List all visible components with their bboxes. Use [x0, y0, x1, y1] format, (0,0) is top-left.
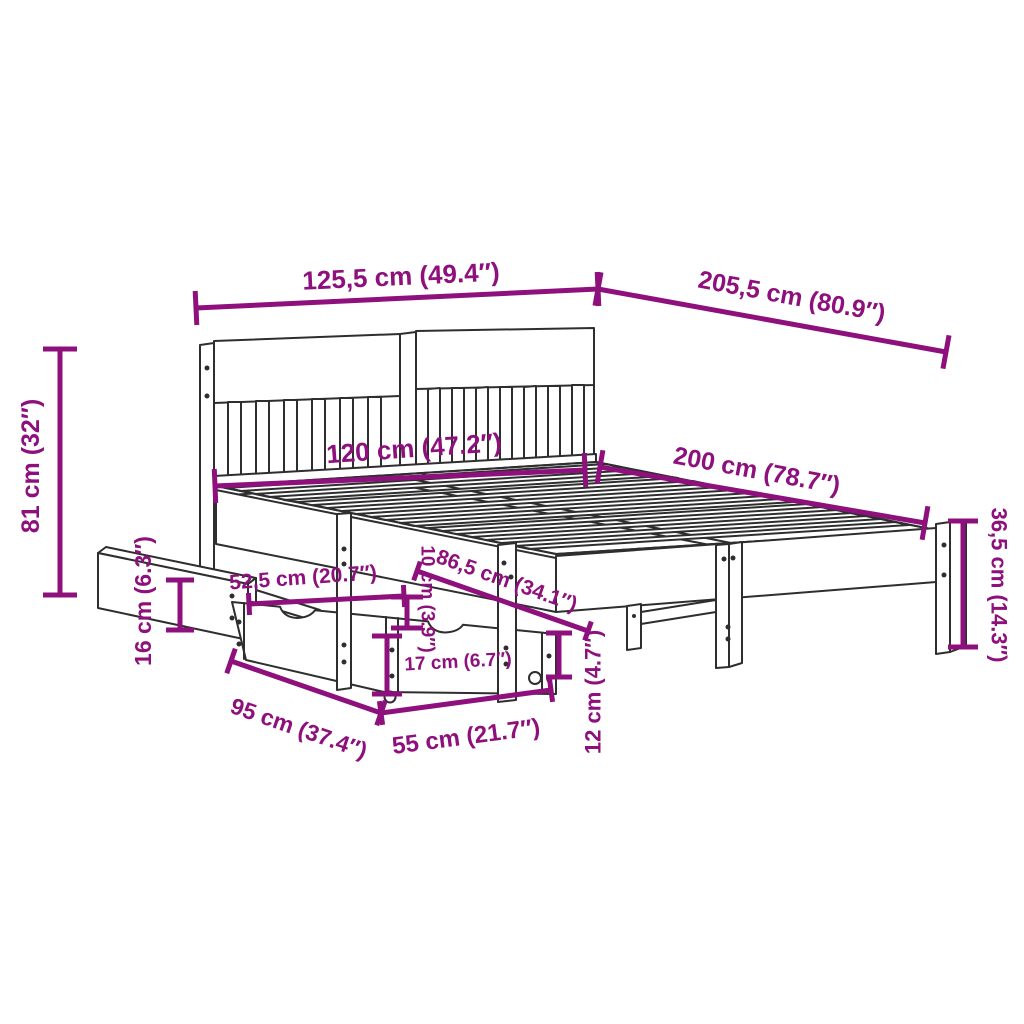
foot-middle-leg-front	[716, 544, 729, 668]
dimension-headboard-height: 81 cm (32″)	[17, 349, 77, 595]
inner-support-leg	[627, 604, 641, 650]
dimension-overall-length: 205,5 cm (80.9″)	[595, 266, 949, 369]
diagram-canvas: 125,5 cm (49.4″)205,5 cm (80.9″)81 cm (3…	[0, 0, 1024, 1024]
foot-middle-leg-side	[729, 542, 742, 667]
foot-right-leg-front	[936, 522, 950, 654]
dimension-label-drawer-top-depth: 52,5 cm (20.7″)	[229, 561, 378, 594]
dimension-label-drawer-panel-height: 16 cm (6.3″)	[130, 536, 156, 666]
bed-dimension-diagram: 125,5 cm (49.4″)205,5 cm (80.9″)81 cm (3…	[0, 0, 1024, 1024]
dimension-label-drawer-width: 55 cm (21.7″)	[391, 714, 542, 760]
dimension-overall-width: 125,5 cm (49.4″)	[195, 256, 599, 325]
dimension-label-caster-clearance: 12 cm (4.7″)	[581, 630, 606, 754]
headboard-left-post	[200, 343, 214, 572]
caster-wheel-right	[529, 672, 541, 684]
bed-frame-illustration	[98, 328, 966, 703]
dimension-label-foot-end-height: 36,5 cm (14.3″)	[986, 508, 1011, 663]
support-strut-bottom	[641, 612, 716, 624]
dimension-label-headboard-height: 81 cm (32″)	[17, 399, 45, 533]
dimension-label-overall-length: 205,5 cm (80.9″)	[696, 266, 888, 328]
headboard-panel-left	[214, 334, 400, 403]
headboard-panel-right	[416, 328, 594, 389]
dimension-label-overall-width: 125,5 cm (49.4″)	[302, 256, 501, 295]
